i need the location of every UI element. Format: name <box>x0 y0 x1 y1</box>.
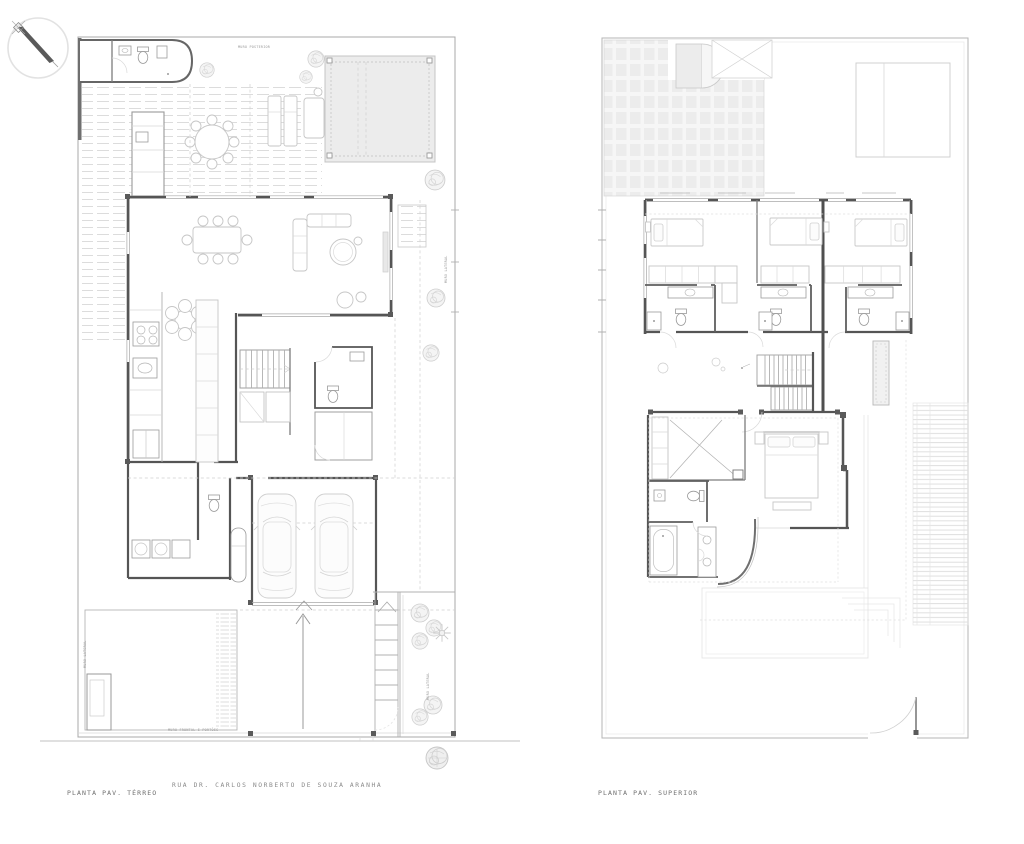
star-plant <box>433 624 451 642</box>
bed <box>855 219 907 246</box>
shower <box>157 46 167 58</box>
pantry <box>132 112 164 196</box>
sink <box>350 352 364 361</box>
car <box>311 494 357 598</box>
ground-floor-plan: MURO POSTERIOR MURO LATERAL MURO LATERAL… <box>40 37 520 769</box>
bed <box>651 219 703 246</box>
car <box>254 494 300 598</box>
sink <box>119 46 131 55</box>
north-arrow-icon <box>8 18 68 78</box>
bed <box>770 218 822 245</box>
toilet <box>209 495 220 512</box>
closet-rooms <box>315 412 372 460</box>
terrace-dining-table <box>185 115 239 169</box>
pool-projection <box>856 63 950 157</box>
planter <box>398 205 426 247</box>
toilet <box>328 386 339 403</box>
shower-capsule <box>231 528 246 582</box>
wall-label-front: MURO FRONTAL E PORTÕES <box>168 727 218 732</box>
upper-floor-plan <box>598 38 968 740</box>
pergola-roof <box>604 40 772 196</box>
powder-room <box>315 347 372 408</box>
wall-label-side-garden: MURO LATERAL <box>426 673 430 701</box>
kitchen-sink <box>133 358 157 378</box>
pool-deck <box>325 56 435 162</box>
ground-floor-title: PLANTA PAV. TÉRREO <box>67 789 157 797</box>
street-line <box>40 737 520 741</box>
architectural-drawing-sheet: MURO POSTERIOR MURO LATERAL MURO LATERAL… <box>0 0 1024 844</box>
planter-upper <box>873 341 889 405</box>
wall-label-side-left: MURO LATERAL <box>83 641 87 669</box>
toilet <box>676 309 687 326</box>
skylight-xbox <box>712 40 772 78</box>
toilet <box>859 309 870 326</box>
wall-label-rear: MURO POSTERIOR <box>238 45 271 49</box>
bedroom-beds <box>646 218 908 246</box>
street-name-label: RUA DR. CARLOS NORBERTO DE SOUZA ARANHA <box>172 782 382 789</box>
wall-label-side-right: MURO LATERAL <box>444 256 448 284</box>
street-tree <box>426 747 448 769</box>
floor-plans-svg: MURO POSTERIOR MURO LATERAL MURO LATERAL… <box>0 0 1024 844</box>
skylight-dome-base <box>676 44 702 88</box>
stove <box>133 322 159 346</box>
roof-slats <box>913 403 968 625</box>
bathtub <box>650 526 677 575</box>
upper-floor-title: PLANTA PAV. SUPERIOR <box>598 789 698 797</box>
entry-bathroom <box>80 40 192 82</box>
front-garden <box>85 610 237 730</box>
toilet <box>688 491 705 502</box>
storage-room <box>87 674 111 730</box>
toilet <box>138 47 149 64</box>
